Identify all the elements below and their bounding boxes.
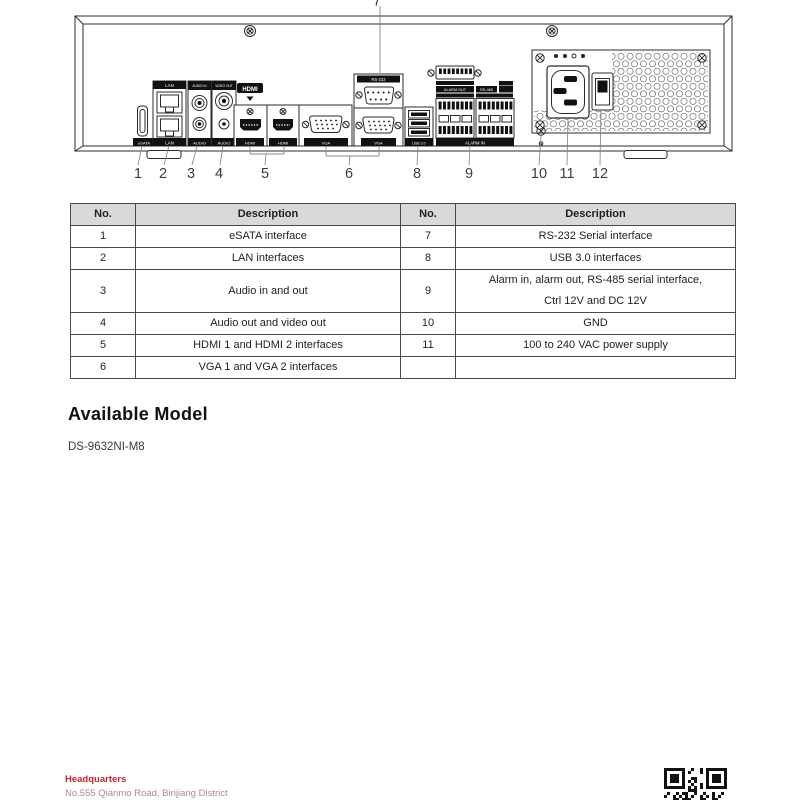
alarm-out-label: ALARM OUT bbox=[444, 88, 467, 92]
cell-description bbox=[456, 357, 736, 379]
vga-2-label: VGA bbox=[374, 140, 383, 145]
callout-number-4: 4 bbox=[215, 166, 223, 182]
callout-number-10: 10 bbox=[531, 166, 547, 182]
vga-1-label: VGA bbox=[322, 140, 331, 145]
headquarters-address: No.555 Qianmo Road, Binjiang District bbox=[65, 788, 228, 799]
video-out-label: VIDEO OUT bbox=[215, 84, 233, 88]
header-description-left: Description bbox=[136, 204, 401, 226]
callout-number-2: 2 bbox=[159, 166, 167, 182]
lan-top-label: LAN bbox=[165, 83, 174, 88]
table-row: 5 HDMI 1 and HDMI 2 interfaces 11 100 to… bbox=[71, 335, 736, 357]
cell-no: 6 bbox=[71, 357, 136, 379]
audio-out-4-label: AUDIO bbox=[218, 140, 231, 145]
cell-description: RS-232 Serial interface bbox=[456, 226, 736, 248]
cell-description: USB 3.0 interfaces bbox=[456, 248, 736, 270]
cell-no: 1 bbox=[71, 226, 136, 248]
header-no-left: No. bbox=[71, 204, 136, 226]
cell-no: 2 bbox=[71, 248, 136, 270]
qr-code bbox=[664, 768, 727, 800]
callout-number-6: 6 bbox=[345, 166, 353, 182]
power-inlet bbox=[547, 66, 589, 118]
cell-description: Alarm in, alarm out, RS-485 serial inter… bbox=[456, 270, 736, 313]
callout-number-12: 12 bbox=[592, 166, 608, 182]
cell-description: Audio in and out bbox=[136, 270, 401, 313]
alarm-in-label: ALARM IN bbox=[465, 141, 485, 146]
table-row: 3 Audio in and out 9 Alarm in, alarm out… bbox=[71, 270, 736, 313]
cell-no: 7 bbox=[401, 226, 456, 248]
cell-no: 5 bbox=[71, 335, 136, 357]
header-description-right: Description bbox=[456, 204, 736, 226]
cell-description: Audio out and video out bbox=[136, 313, 401, 335]
hdmi-logo-label: HDMI bbox=[242, 87, 258, 93]
cell-no: 4 bbox=[71, 313, 136, 335]
hdmi-1-label: HDMI bbox=[245, 140, 255, 145]
cell-no: 10 bbox=[401, 313, 456, 335]
table-row: 1 eSATA interface 7 RS-232 Serial interf… bbox=[71, 226, 736, 248]
cell-description: GND bbox=[456, 313, 736, 335]
interface-description-table: No. Description No. Description 1 eSATA … bbox=[70, 203, 736, 379]
esata-port bbox=[138, 106, 148, 136]
callout-number-9: 9 bbox=[465, 166, 473, 182]
table-row: 6 VGA 1 and VGA 2 interfaces bbox=[71, 357, 736, 379]
model-number: DS-9632NI-M8 bbox=[68, 441, 145, 453]
usb-ports bbox=[405, 107, 433, 146]
video-audio-out-jacks bbox=[212, 81, 236, 146]
rs232-label: RS-232 bbox=[371, 77, 386, 82]
lan-ports bbox=[153, 81, 186, 146]
cell-no: 9 bbox=[401, 270, 456, 313]
cell-description: LAN interfaces bbox=[136, 248, 401, 270]
callout-number-7-top: 7 bbox=[373, 0, 381, 10]
rs485-label: RS-485 bbox=[480, 88, 493, 92]
cell-description: 100 to 240 VAC power supply bbox=[456, 335, 736, 357]
datasheet-page: eSATA LAN LAN AUDIO IN AUDIO VIDEO OUT A… bbox=[0, 0, 800, 800]
lan-bottom-label: LAN bbox=[165, 141, 174, 146]
callout-number-8: 8 bbox=[413, 166, 421, 182]
table-header-row: No. Description No. Description bbox=[71, 204, 736, 226]
available-model-heading: Available Model bbox=[68, 404, 208, 425]
cell-description: HDMI 1 and HDMI 2 interfaces bbox=[136, 335, 401, 357]
table-row: 2 LAN interfaces 8 USB 3.0 interfaces bbox=[71, 248, 736, 270]
esata-label: eSATA bbox=[138, 140, 150, 145]
cell-no: 8 bbox=[401, 248, 456, 270]
usb-label: USB 3.0 bbox=[412, 141, 425, 145]
audio-in-label: AUDIO IN bbox=[192, 84, 207, 88]
hdmi-2-label: HDMI bbox=[278, 140, 288, 145]
audio-in-out-jacks bbox=[188, 81, 211, 146]
chassis-foot-left bbox=[147, 151, 181, 159]
description-line: Alarm in, alarm out, RS-485 serial inter… bbox=[456, 270, 735, 291]
rear-panel-diagram: eSATA LAN LAN AUDIO IN AUDIO VIDEO OUT A… bbox=[0, 0, 800, 190]
header-no-right: No. bbox=[401, 204, 456, 226]
callout-number-3: 3 bbox=[187, 166, 195, 182]
chassis-foot-right bbox=[624, 151, 667, 159]
headquarters-label: Headquarters bbox=[65, 774, 126, 785]
cell-description: eSATA interface bbox=[136, 226, 401, 248]
audio-out-3-label: AUDIO bbox=[193, 140, 206, 145]
power-switch bbox=[592, 73, 613, 110]
description-line: Ctrl 12V and DC 12V bbox=[456, 291, 735, 312]
callout-number-11: 11 bbox=[559, 166, 574, 182]
callout-number-5: 5 bbox=[261, 166, 269, 182]
cell-no bbox=[401, 357, 456, 379]
callout-number-1: 1 bbox=[134, 166, 142, 182]
cell-description: VGA 1 and VGA 2 interfaces bbox=[136, 357, 401, 379]
cell-no: 3 bbox=[71, 270, 136, 313]
table-row: 4 Audio out and video out 10 GND bbox=[71, 313, 736, 335]
cell-no: 11 bbox=[401, 335, 456, 357]
